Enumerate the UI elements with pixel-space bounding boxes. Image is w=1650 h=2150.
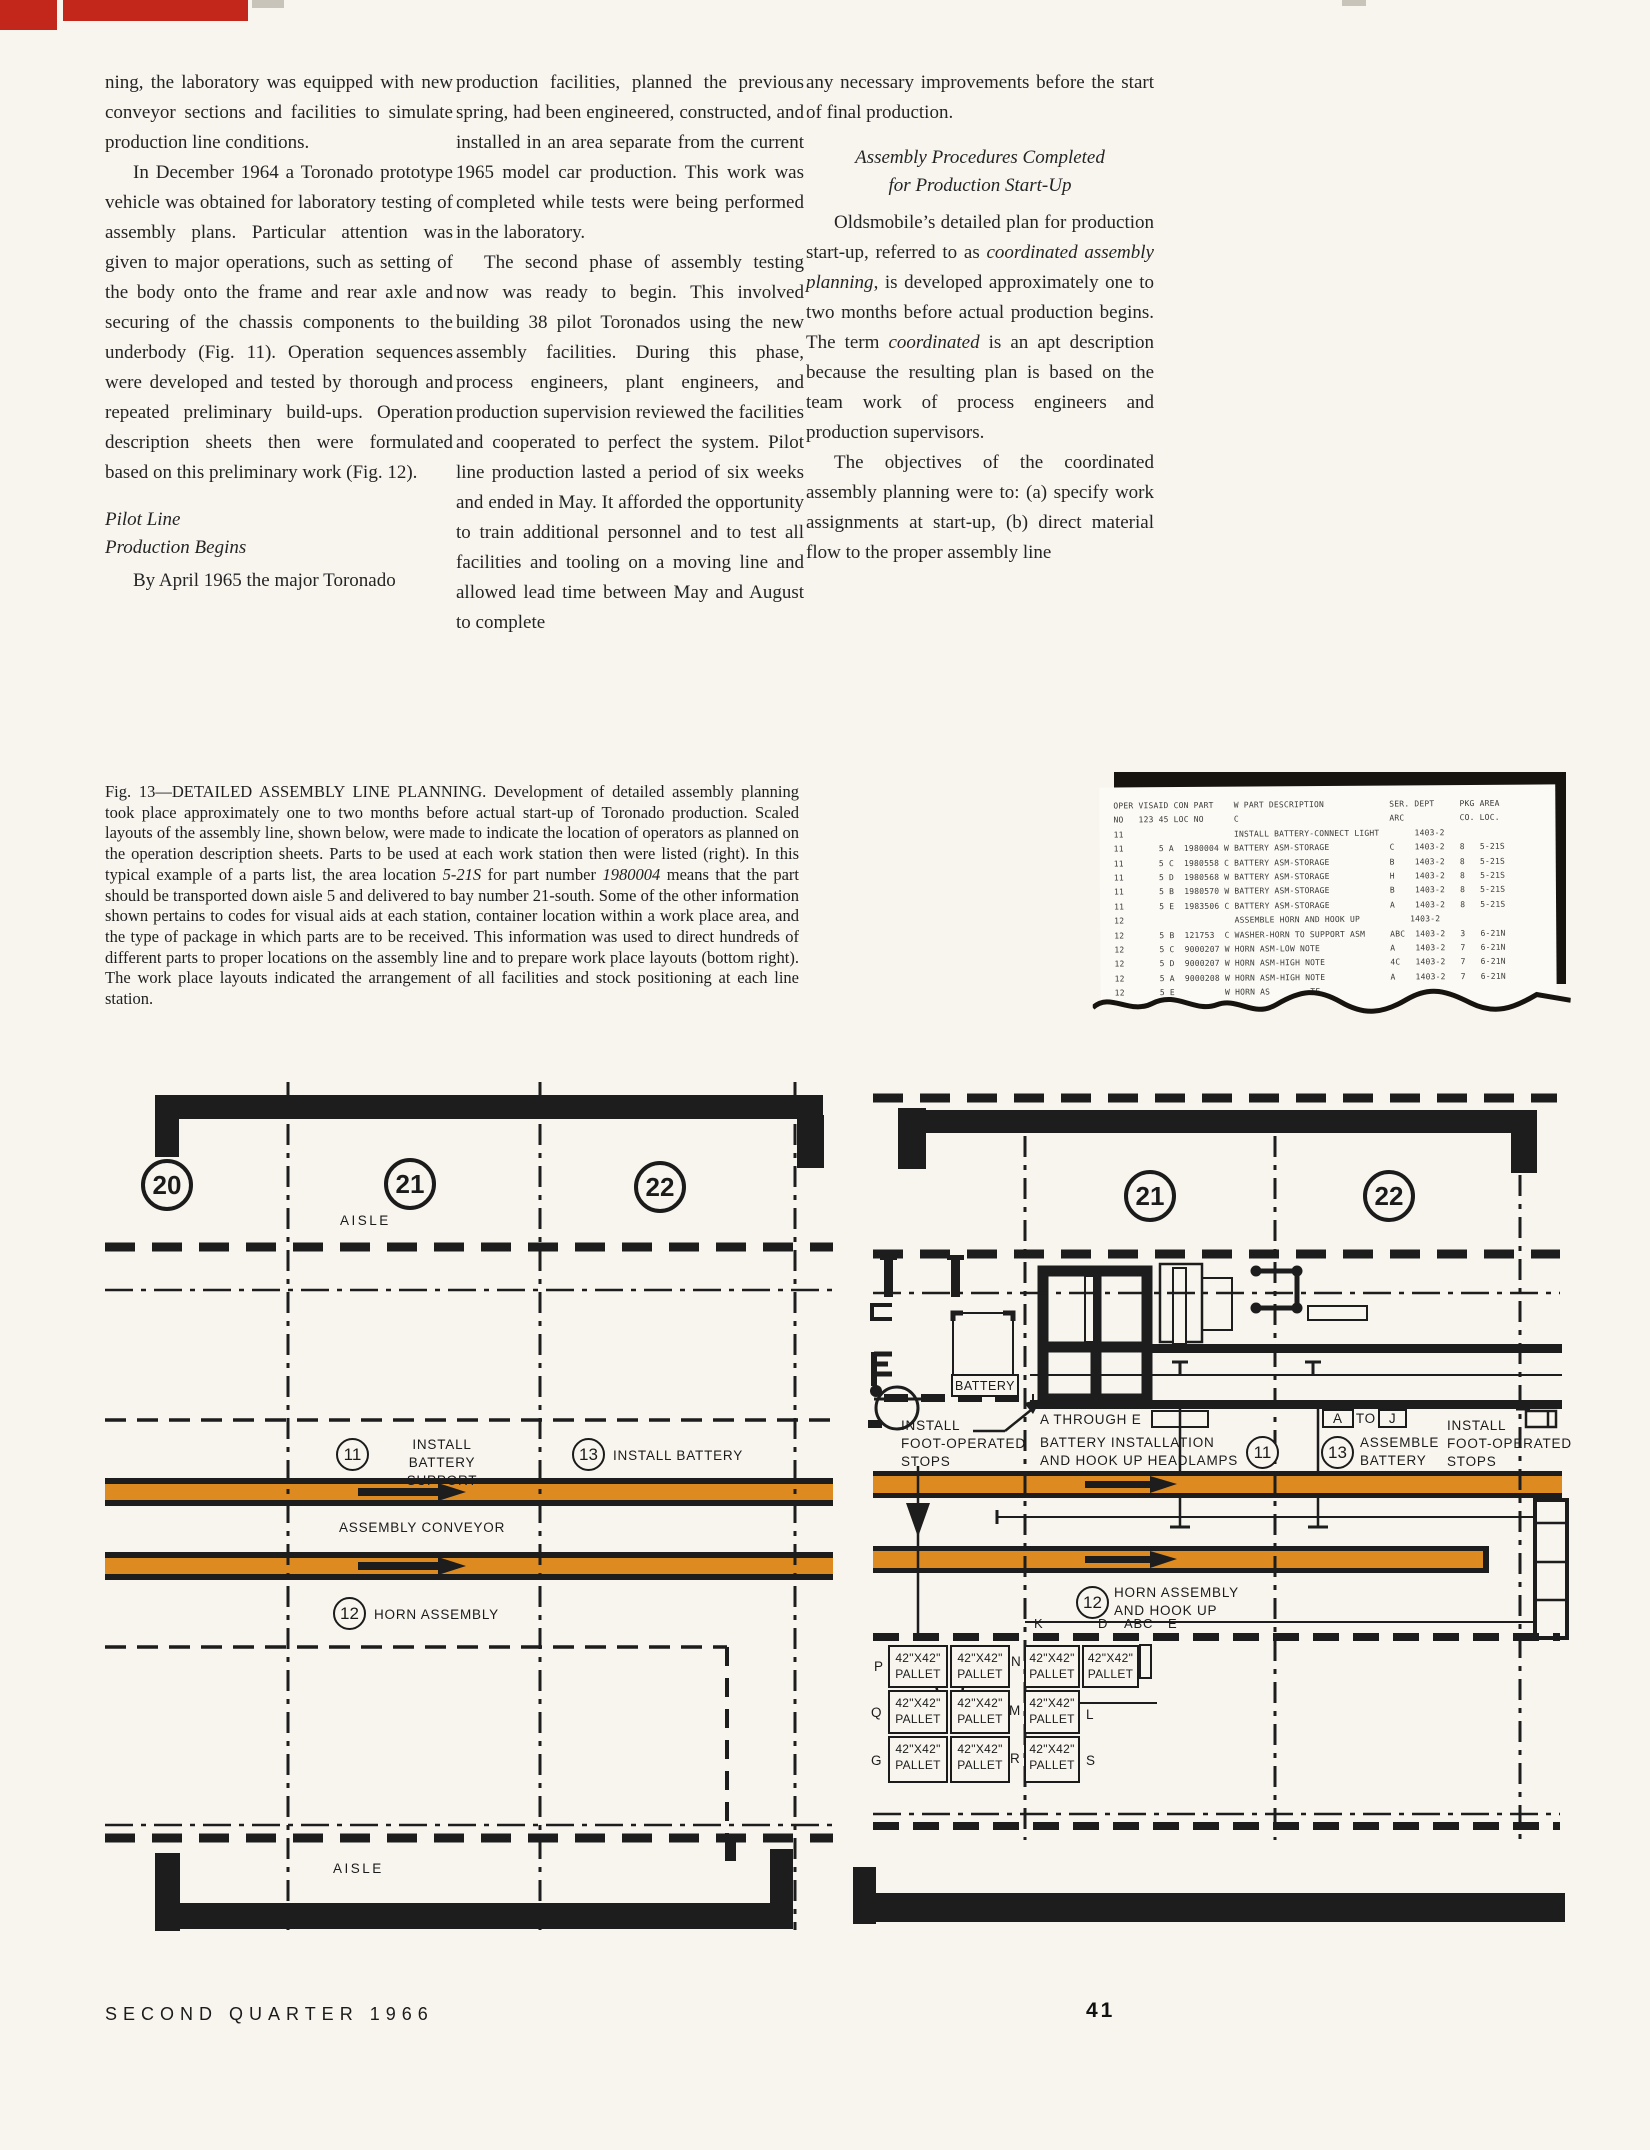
left-plan-walls xyxy=(155,1095,824,1931)
battery-installation-label: BATTERY INSTALLATIONAND HOOK UP HEADLAMP… xyxy=(1040,1434,1238,1470)
position-label-d: D xyxy=(1098,1615,1108,1633)
op12-label: HORN ASSEMBLY xyxy=(374,1606,499,1624)
a-to-j-label: ATOJ xyxy=(1320,1410,1409,1428)
pallet-size: 42"X42" xyxy=(1029,1696,1074,1710)
journal-footer: SECOND QUARTER 1966 xyxy=(105,2004,434,2025)
op-circle-11-right: 11 xyxy=(1246,1436,1279,1469)
pallet-cell: 42"X42"PALLET xyxy=(888,1736,948,1783)
pallet-cell: 42"X42"PALLET xyxy=(950,1690,1010,1734)
pallet-word: PALLET xyxy=(895,1758,941,1772)
pallet-row-label-g: G xyxy=(871,1752,882,1770)
install-stops-left-label: INSTALLFOOT-OPERATEDSTOPS xyxy=(901,1417,1026,1471)
station-circle-20: 20 xyxy=(141,1159,193,1211)
pallet-cell: 42"X42"PALLET xyxy=(888,1690,948,1734)
install-stops-right-label: INSTALLFOOT-OPERATEDSTOPS xyxy=(1447,1417,1572,1471)
battery-container xyxy=(953,1313,1013,1377)
position-label-k: K xyxy=(1034,1615,1043,1633)
pallet-word: PALLET xyxy=(895,1712,941,1726)
pallet-size: 42"X42" xyxy=(895,1742,940,1756)
pallet-word: PALLET xyxy=(957,1712,1003,1726)
pallet-size: 42"X42" xyxy=(1029,1651,1074,1665)
pallet-word: PALLET xyxy=(1029,1667,1075,1681)
station-circle-22-right: 22 xyxy=(1363,1170,1415,1222)
station-circle-21-right: 21 xyxy=(1124,1170,1176,1222)
pallet-mid-label-m: M xyxy=(1009,1702,1021,1720)
pallet-size: 42"X42" xyxy=(1029,1742,1074,1756)
segmented-rack xyxy=(1535,1500,1567,1638)
position-label-abc: ABC xyxy=(1124,1615,1153,1633)
aisle-label-top: AISLE xyxy=(340,1212,391,1230)
assemble-battery-label: ASSEMBLEBATTERY xyxy=(1360,1434,1439,1470)
pallet-mid-label-n: N xyxy=(1011,1653,1022,1671)
assembly-conveyor-label: ASSEMBLY CONVEYOR xyxy=(339,1519,505,1537)
pallet-size: 42"X42" xyxy=(957,1651,1002,1665)
op11-label: INSTALL BATTERYSUPPORT xyxy=(378,1436,506,1490)
pallet-word: PALLET xyxy=(1029,1758,1075,1772)
a-through-e-label: A THROUGH E xyxy=(1040,1411,1142,1429)
pallet-size: 42"X42" xyxy=(895,1651,940,1665)
op-circle-12: 12 xyxy=(333,1597,366,1630)
pallet-side-label-l: L xyxy=(1086,1706,1094,1724)
station-circle-22: 22 xyxy=(634,1161,686,1213)
page-number: 41 xyxy=(1086,1999,1115,2023)
pallet-size: 42"X42" xyxy=(957,1696,1002,1710)
pallet-row-label-q: Q xyxy=(871,1704,882,1722)
pallet-cell: 42"X42"PALLET xyxy=(1082,1645,1139,1688)
magazine-page: ning, the laboratory was equipped with n… xyxy=(0,0,1650,2150)
pallet-word: PALLET xyxy=(895,1667,941,1681)
pallet-word: PALLET xyxy=(1088,1667,1134,1681)
pallet-side-label-s: S xyxy=(1086,1752,1096,1770)
pallet-word: PALLET xyxy=(957,1667,1003,1681)
pallet-mid-label-r: R xyxy=(1010,1750,1021,1768)
assembly-line-plans xyxy=(0,0,1650,2150)
aisle-label-bottom: AISLE xyxy=(333,1860,384,1878)
pallet-size: 42"X42" xyxy=(895,1696,940,1710)
pallet-cell: 42"X42"PALLET xyxy=(1024,1736,1080,1783)
pallet-cell: 42"X42"PALLET xyxy=(950,1645,1010,1688)
pallet-word: PALLET xyxy=(957,1758,1003,1772)
op-circle-13-right: 13 xyxy=(1321,1436,1354,1469)
pallet-cell: 42"X42"PALLET xyxy=(950,1736,1010,1783)
op-circle-13: 13 xyxy=(572,1438,605,1471)
pallet-cell: 42"X42"PALLET xyxy=(888,1645,948,1688)
pallet-row-label-p: P xyxy=(874,1658,884,1676)
pallet-cell: 42"X42"PALLET xyxy=(1024,1645,1080,1688)
op13-label: INSTALL BATTERY xyxy=(613,1447,743,1465)
pallet-size: 42"X42" xyxy=(1088,1651,1133,1665)
pallet-word: PALLET xyxy=(1029,1712,1075,1726)
stop-bracket xyxy=(872,1305,892,1319)
op-circle-11: 11 xyxy=(336,1438,369,1471)
position-label-e: E xyxy=(1168,1615,1177,1633)
station-circle-21: 21 xyxy=(384,1158,436,1210)
pallet-cell: 42"X42"PALLET xyxy=(1024,1690,1080,1734)
right-assembly-conveyors xyxy=(873,1471,1562,1573)
pallet-size: 42"X42" xyxy=(957,1742,1002,1756)
battery-box-label: BATTERY xyxy=(951,1374,1019,1397)
